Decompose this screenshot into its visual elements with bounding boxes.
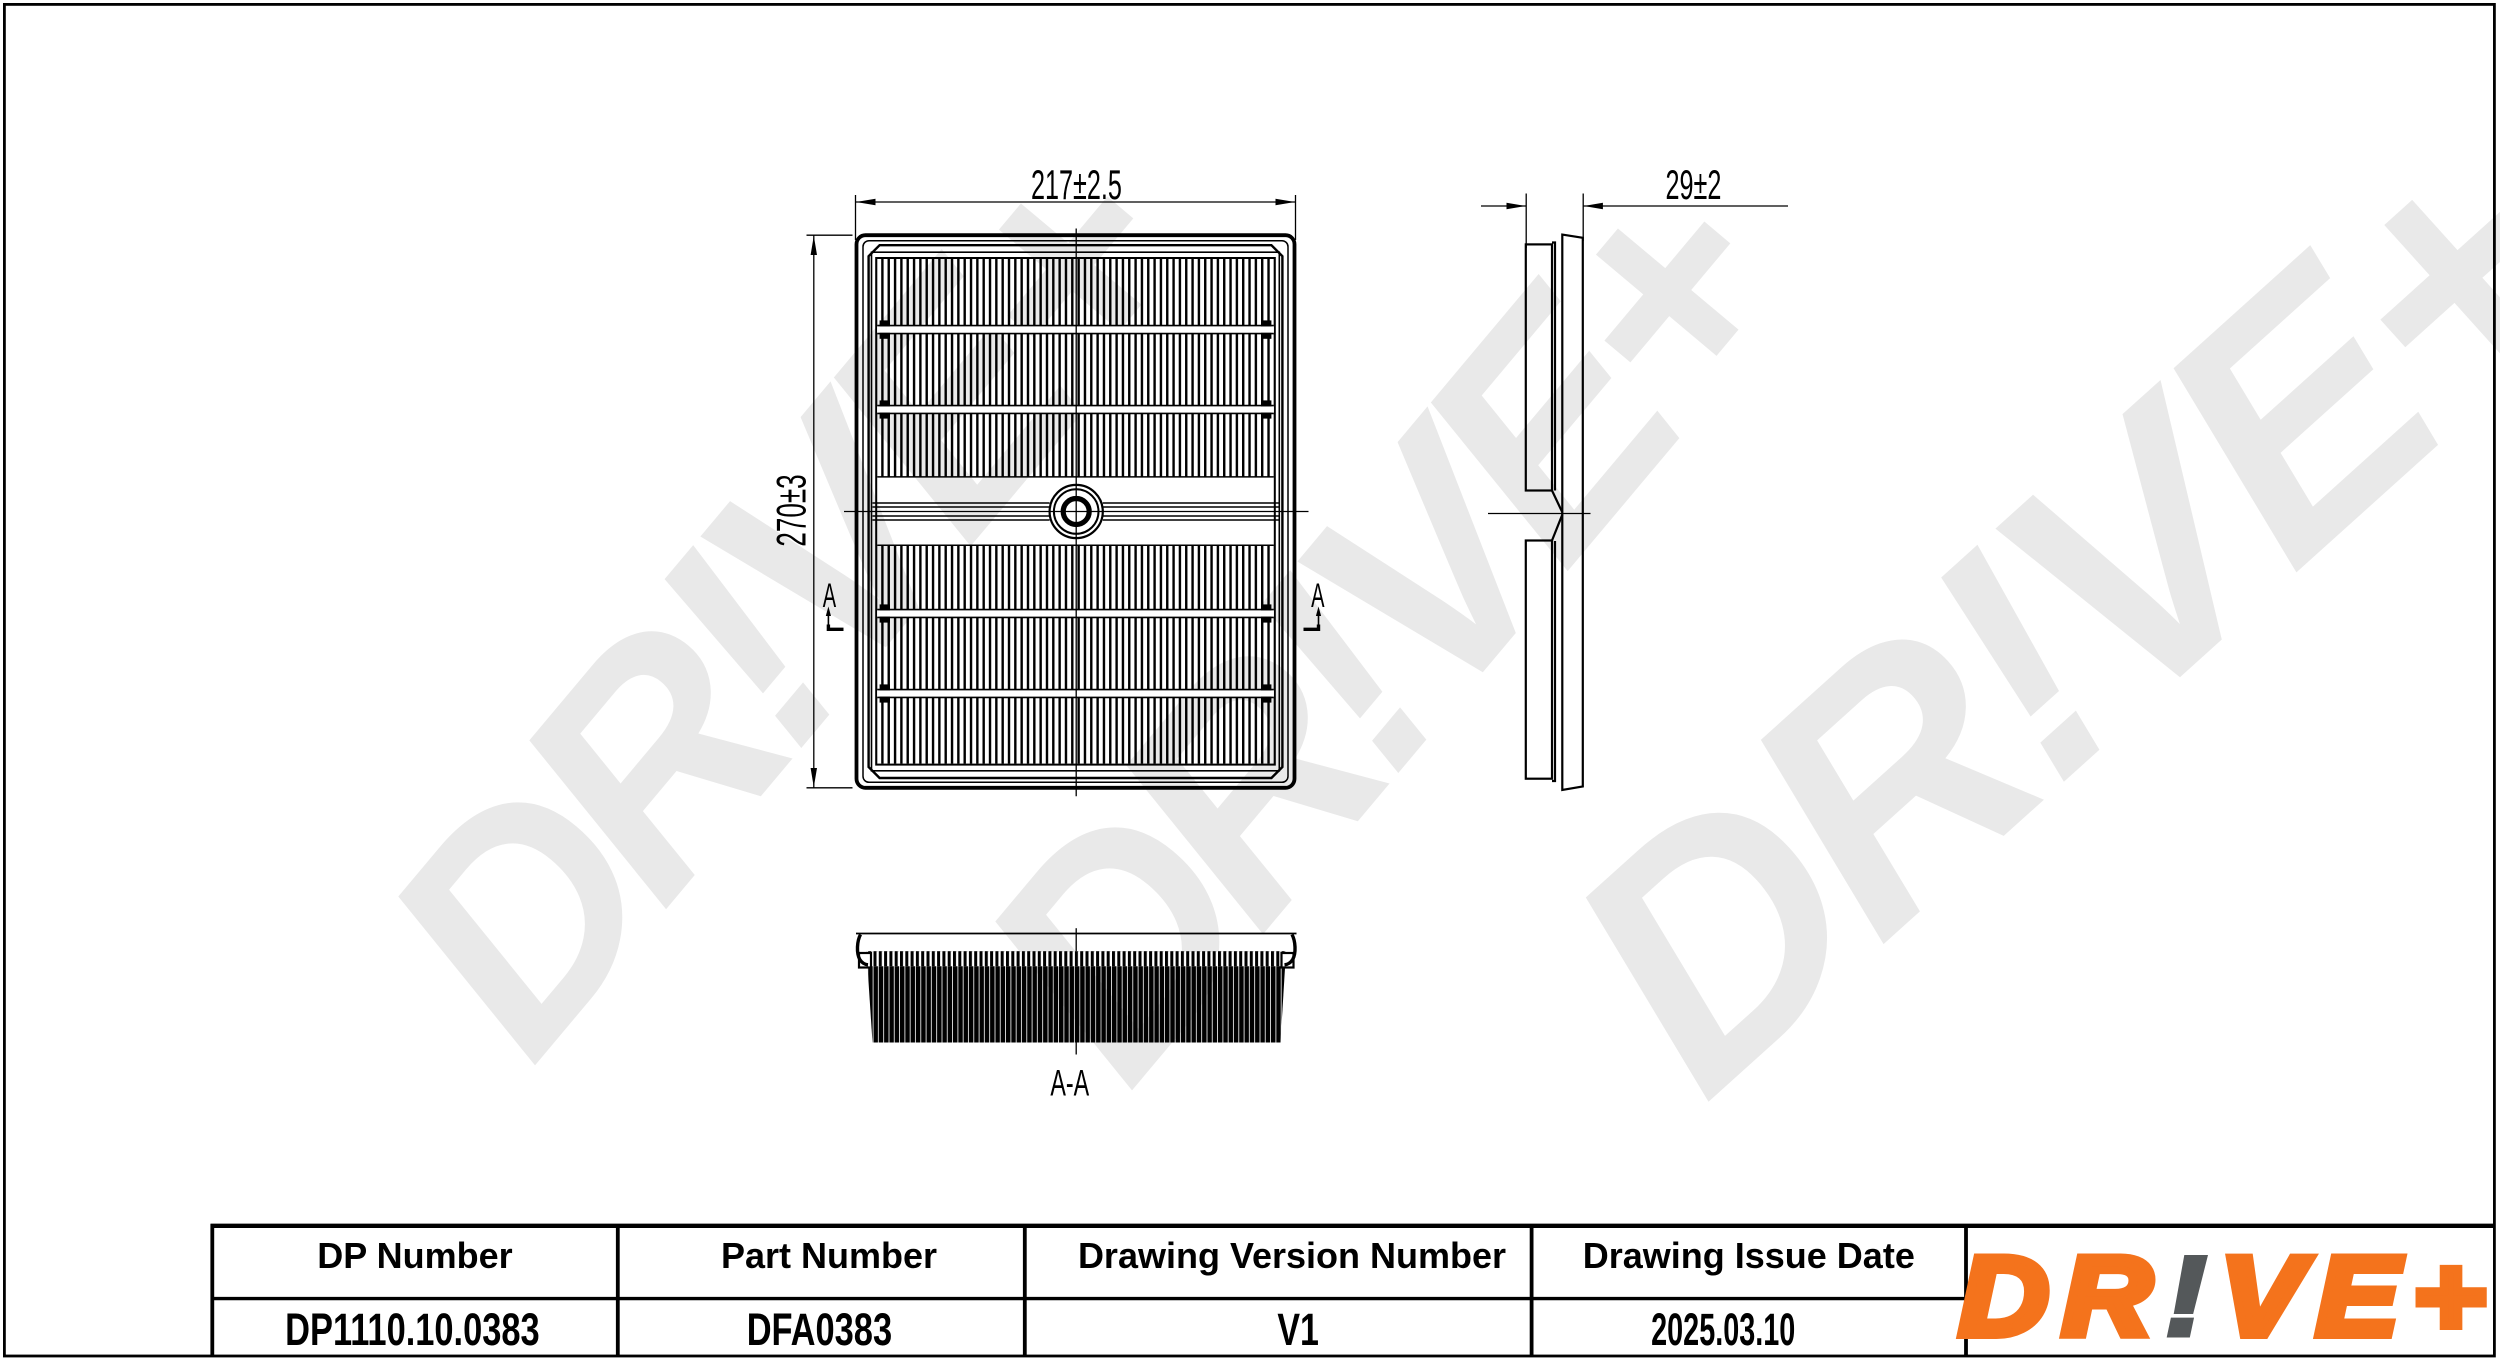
svg-text:Drawing Issue Date: Drawing Issue Date <box>1583 1235 1915 1276</box>
svg-text:A: A <box>1311 577 1325 615</box>
svg-text:Drawing Version Number: Drawing Version Number <box>1078 1235 1506 1276</box>
svg-text:DR!VE+: DR!VE+ <box>1959 1235 2498 1360</box>
svg-text:Part Number: Part Number <box>721 1235 937 1276</box>
svg-text:217±2.5: 217±2.5 <box>1031 163 1122 209</box>
svg-text:2025.03.10: 2025.03.10 <box>1651 1306 1795 1356</box>
svg-text:270±3: 270±3 <box>768 474 815 546</box>
svg-text:DP Number: DP Number <box>317 1235 512 1276</box>
svg-text:A-A: A-A <box>1050 1062 1089 1104</box>
svg-text:DFA0383: DFA0383 <box>747 1306 892 1355</box>
svg-text:29±2: 29±2 <box>1665 163 1721 209</box>
svg-text:DP1110.10.0383: DP1110.10.0383 <box>285 1306 540 1355</box>
svg-text:V1: V1 <box>1277 1305 1319 1355</box>
svg-text:A: A <box>823 577 837 615</box>
